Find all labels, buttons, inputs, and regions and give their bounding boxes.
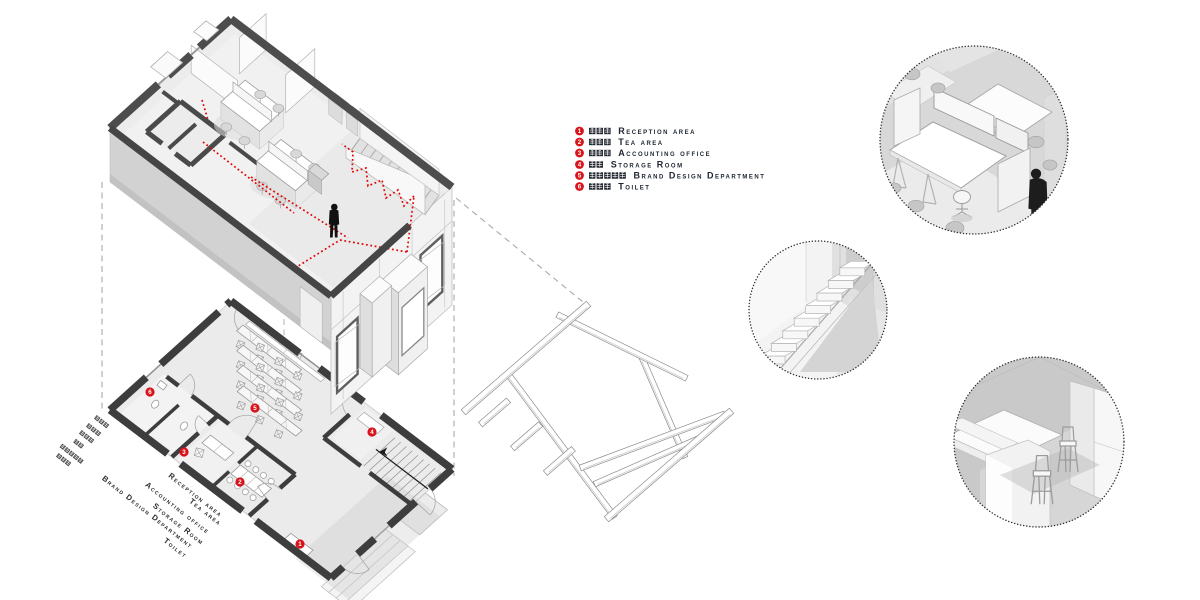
svg-text:4: 4 [370,429,374,436]
svg-text:Storage Room: Storage Room [611,160,684,170]
svg-text:Toilet: Toilet [618,182,650,192]
svg-text:2: 2 [578,139,582,146]
svg-text:Accounting office: Accounting office [618,148,711,158]
svg-text:Tea area: Tea area [618,137,663,147]
svg-text:Brand Design Department: Brand Design Department [634,171,766,181]
svg-text:3: 3 [182,449,186,456]
svg-text:5: 5 [578,173,582,180]
svg-text:6: 6 [578,184,582,191]
svg-text:3: 3 [578,150,582,157]
svg-text:4: 4 [578,162,582,169]
svg-text:1: 1 [578,128,582,135]
svg-text:Reception area: Reception area [618,126,696,136]
svg-text:5: 5 [253,405,257,412]
svg-text:1: 1 [298,541,302,548]
svg-text:2: 2 [238,479,242,486]
svg-text:6: 6 [148,389,152,396]
